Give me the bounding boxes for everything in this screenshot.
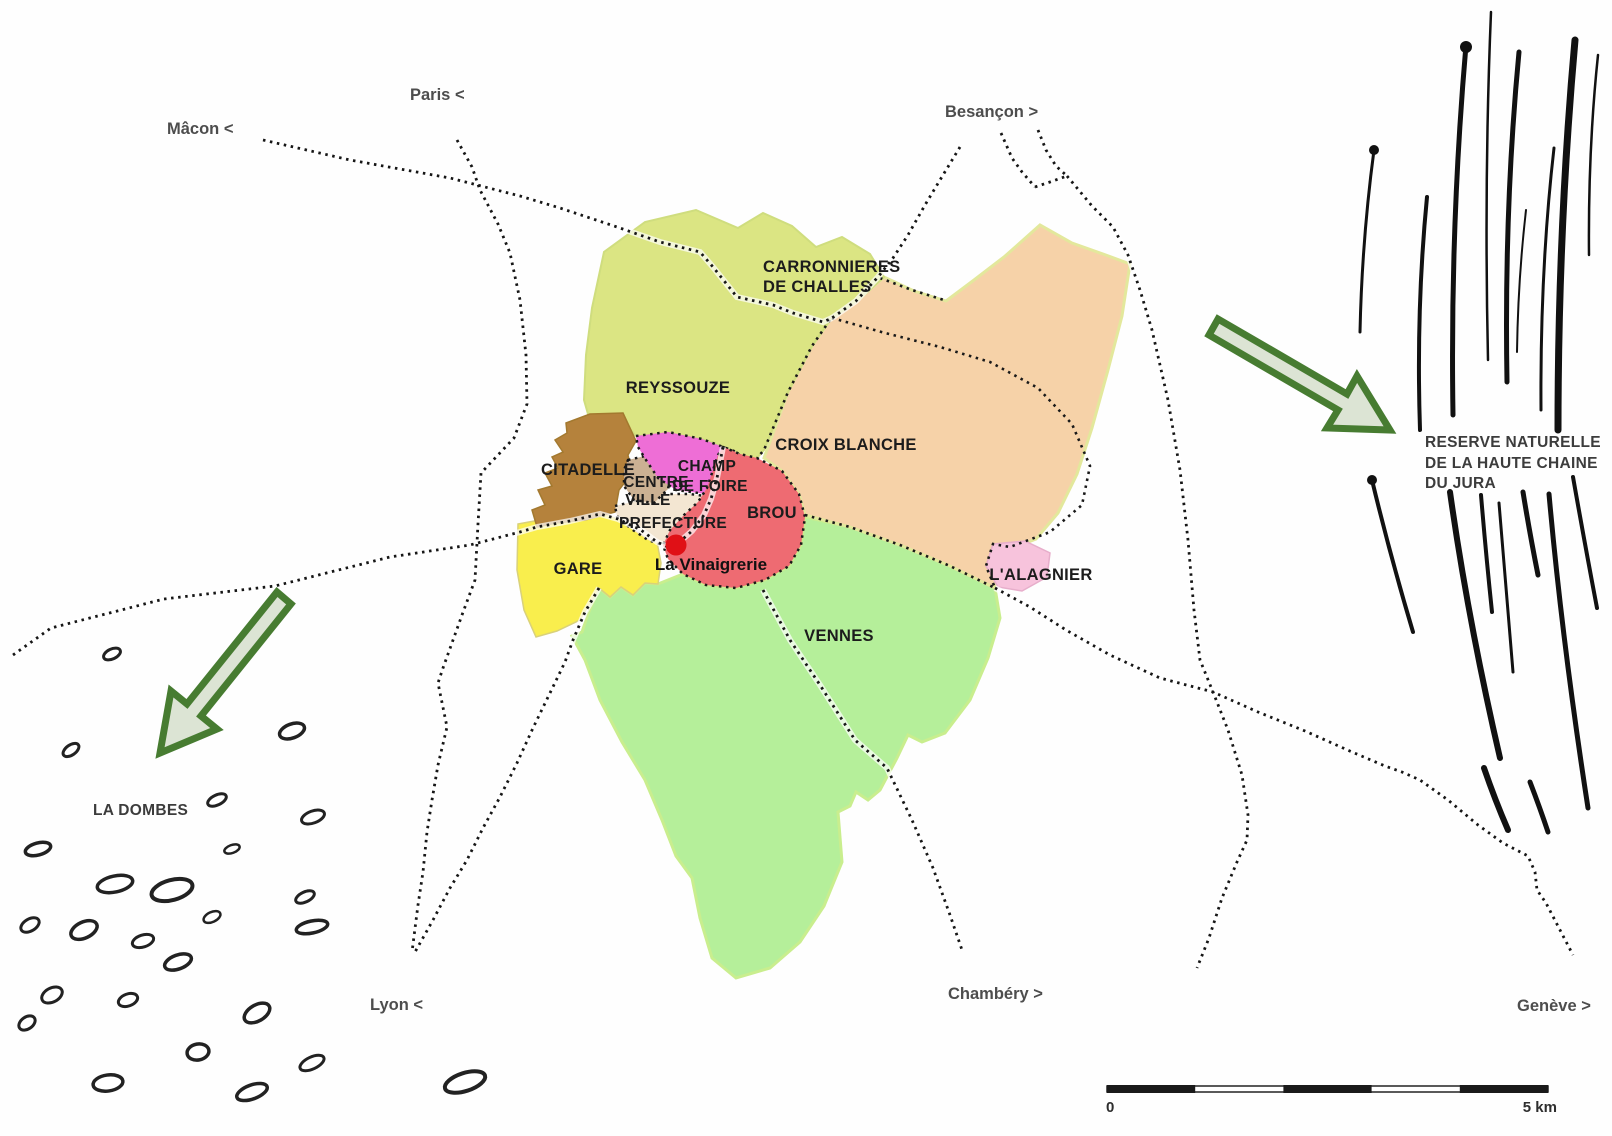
ridge-stroke (1517, 210, 1526, 352)
direction-macon: Mâcon < (167, 120, 233, 138)
direction-geneve: Genève > (1517, 997, 1591, 1015)
lake-shape (162, 951, 193, 974)
la-vinaigrerie-marker (666, 535, 687, 556)
lake-shape (223, 843, 241, 856)
label-vennes: VENNES (804, 627, 874, 645)
label-la-dombes: LA DOMBES (93, 802, 188, 819)
ridge-stroke (1487, 12, 1491, 360)
ridge-stroke (1530, 782, 1548, 832)
road-besancon-branch-b (1038, 130, 1067, 176)
lake-shape (277, 720, 306, 742)
ridge-stroke (1523, 492, 1538, 575)
lake-shape (131, 932, 156, 950)
lake-shape (294, 888, 316, 906)
lake-shape (96, 872, 135, 895)
label-prefecture: PREFECTURE (619, 515, 727, 532)
label-la-vinaigrerie: La Vinaigrerie (655, 555, 767, 574)
ridge-stroke (1453, 45, 1466, 415)
dombes-lakes (16, 646, 488, 1104)
ridge-stroke (1484, 768, 1508, 830)
ridge-stroke (1372, 480, 1413, 632)
dombes-arrow (160, 592, 291, 753)
label-reserve-2: DE LA HAUTE CHAINE (1425, 455, 1598, 472)
scale-start-label: 0 (1106, 1099, 1114, 1116)
direction-paris: Paris < (410, 86, 465, 104)
map-page: REYSSOUZE CARRONNIERES DE CHALLES CROIX … (0, 0, 1612, 1136)
districts-layer (517, 210, 1130, 978)
lake-shape (24, 840, 52, 858)
label-champ-de-foire-1: CHAMP (678, 458, 736, 475)
direction-lyon: Lyon < (370, 996, 423, 1014)
ridge-stroke (1419, 197, 1427, 430)
ridge-stroke (1589, 55, 1598, 255)
lake-shape (186, 1042, 210, 1062)
label-carronnieres-2: DE CHALLES (763, 278, 871, 296)
ridge-stroke (1549, 494, 1588, 808)
scale-bar: 0 5 km (1106, 1085, 1557, 1116)
lake-shape (241, 999, 273, 1027)
lake-shape (68, 917, 100, 943)
label-carronnieres-1: CARRONNIERES (763, 258, 900, 276)
label-champ-de-foire-2: DE FOIRE (672, 478, 748, 495)
jura-arrow (1209, 319, 1390, 430)
lake-shape (92, 1073, 124, 1093)
label-gare: GARE (554, 560, 603, 578)
label-reserve-1: RESERVE NATURELLE (1425, 434, 1601, 451)
scale-end-label: 5 km (1523, 1099, 1557, 1116)
lake-shape (61, 741, 81, 760)
lake-shape (149, 875, 195, 905)
label-citadelle: CITADELLE (541, 461, 635, 479)
lake-shape (18, 915, 41, 935)
ridge-stroke (1450, 492, 1500, 758)
label-croix-blanche: CROIX BLANCHE (775, 436, 916, 454)
lake-shape (206, 791, 228, 809)
lake-shape (202, 909, 223, 926)
lake-shape (102, 646, 123, 663)
road-casing (415, 588, 599, 952)
ridge-stroke (1499, 503, 1513, 672)
label-alagnier: L'ALAGNIER (989, 566, 1092, 584)
direction-chambery: Chambéry > (948, 985, 1043, 1003)
jura-ridges (1360, 12, 1598, 832)
map-canvas: REYSSOUZE CARRONNIERES DE CHALLES CROIX … (0, 0, 1612, 1136)
ridge-stroke (1360, 150, 1374, 332)
lake-shape (300, 807, 327, 826)
ridge-stroke (1573, 477, 1597, 608)
lake-shape (442, 1067, 488, 1097)
lake-shape (235, 1080, 270, 1104)
lake-shape (39, 984, 65, 1007)
label-brou: BROU (747, 504, 797, 522)
ridge-stroke (1558, 40, 1575, 430)
scale-bar-segment (1283, 1085, 1371, 1093)
lake-shape (16, 1013, 38, 1033)
lake-shape (295, 918, 329, 936)
ridge-stroke (1541, 148, 1554, 410)
scale-bar-segment (1107, 1085, 1195, 1093)
label-centre-ville-2: VILLE (625, 492, 670, 509)
scale-bar-segment (1460, 1085, 1548, 1093)
lake-shape (298, 1052, 327, 1074)
label-reyssouze: REYSSOUZE (626, 379, 730, 397)
road-besancon-branch-a (1001, 133, 1035, 187)
lake-shape (117, 991, 140, 1009)
road-besancon-connector (1035, 176, 1067, 187)
label-reserve-3: DU JURA (1425, 475, 1496, 492)
direction-besancon: Besançon > (945, 103, 1038, 121)
ridge-stroke (1481, 495, 1492, 612)
